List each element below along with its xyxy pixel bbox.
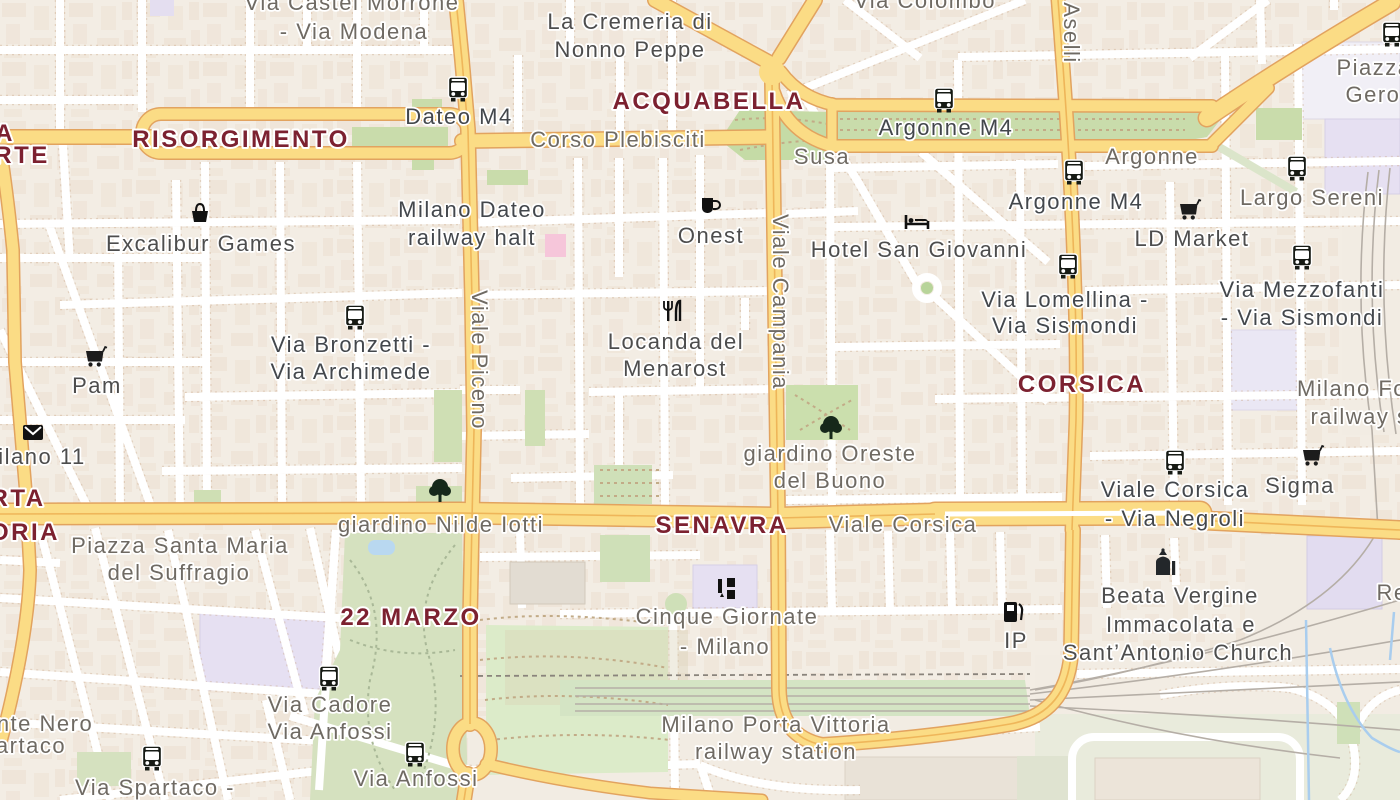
svg-text:Via Archimede: Via Archimede [271,359,432,384]
svg-text:Nonno Peppe: Nonno Peppe [554,37,705,62]
svg-text:Hotel San Giovanni: Hotel San Giovanni [811,237,1028,262]
svg-text:Via Bronzetti -: Via Bronzetti - [271,332,431,357]
svg-text:Via Spartaco -: Via Spartaco - [75,775,235,800]
svg-text:RISORGIMENTO: RISORGIMENTO [132,126,350,153]
svg-text:Argonne: Argonne [1105,144,1199,169]
svg-text:railway station: railway station [695,739,857,764]
svg-text:Re: Re [1376,580,1400,605]
svg-text:del Buono: del Buono [774,468,887,493]
svg-text:Viale Corsica: Viale Corsica [1101,477,1250,502]
svg-text:Argonne M4: Argonne M4 [879,115,1014,140]
svg-text:Corso Plebisciti: Corso Plebisciti [530,127,706,152]
svg-text:- Via Sismondi: - Via Sismondi [1221,305,1383,330]
svg-text:Via Mezzofanti: Via Mezzofanti [1220,277,1385,302]
svg-text:Via Sismondi: Via Sismondi [992,313,1138,338]
svg-text:CORSICA: CORSICA [1018,371,1146,398]
svg-text:Milano Dateo: Milano Dateo [398,197,546,222]
svg-text:- Via Negroli: - Via Negroli [1105,506,1245,531]
svg-text:ilano 11: ilano 11 [0,444,86,469]
svg-text:Sant’Antonio Church: Sant’Antonio Church [1063,640,1293,665]
svg-text:Cinque Giornate: Cinque Giornate [636,604,819,629]
svg-text:LD Market: LD Market [1135,226,1250,251]
svg-text:Milano Fo: Milano Fo [1297,376,1400,401]
svg-text:Menarost: Menarost [623,356,727,381]
svg-text:Largo Sereni: Largo Sereni [1240,185,1384,210]
svg-text:- Milano: - Milano [680,634,770,659]
svg-text:Onest: Onest [678,223,744,248]
svg-text:railway s: railway s [1310,404,1400,429]
svg-text:Via Castel Morrone: Via Castel Morrone [245,0,460,15]
svg-text:RTA: RTA [0,485,46,512]
svg-text:railway halt: railway halt [408,225,536,250]
svg-text:Susa: Susa [794,144,850,169]
svg-text:artaco: artaco [0,733,66,758]
svg-text:RTE: RTE [0,142,50,169]
svg-text:Viale Corsica: Viale Corsica [829,512,978,537]
svg-text:ORIA: ORIA [0,519,60,546]
svg-text:Viale Piceno: Viale Piceno [467,290,492,430]
svg-text:Piazza Santa Maria: Piazza Santa Maria [71,533,289,558]
svg-text:Aselli: Aselli [1059,2,1084,64]
svg-text:del Suffragio: del Suffragio [108,560,251,585]
svg-text:giardino Nilde Iotti: giardino Nilde Iotti [338,512,544,537]
svg-text:Via Cadore: Via Cadore [268,692,393,717]
svg-text:Via Anfossi: Via Anfossi [354,766,479,791]
svg-text:Argonne M4: Argonne M4 [1009,189,1144,214]
svg-text:- Via Modena: - Via Modena [280,19,428,44]
svg-text:La Cremeria di: La Cremeria di [547,9,712,34]
svg-text:Viale Campania: Viale Campania [768,214,793,390]
svg-text:Milano Porta Vittoria: Milano Porta Vittoria [661,712,890,737]
svg-text:Via Anfossi: Via Anfossi [268,719,393,744]
svg-text:Excalibur Games: Excalibur Games [106,231,296,256]
svg-text:ACQUABELLA: ACQUABELLA [613,88,806,115]
svg-text:Via Colombo: Via Colombo [854,0,996,13]
svg-text:Pam: Pam [72,373,122,398]
svg-text:IP: IP [1004,628,1028,653]
svg-text:Dateo M4: Dateo M4 [405,104,512,129]
svg-text:Immacolata e: Immacolata e [1106,612,1256,637]
svg-text:22 MARZO: 22 MARZO [340,604,481,631]
svg-text:SENAVRA: SENAVRA [655,512,788,539]
svg-text:giardino Oreste: giardino Oreste [744,441,917,466]
svg-text:Gerola: Gerola [1345,82,1400,107]
svg-text:Via Lomellina -: Via Lomellina - [981,287,1149,312]
svg-text:Beata Vergine: Beata Vergine [1101,583,1259,608]
svg-text:Locanda del: Locanda del [608,329,744,354]
svg-text:Sigma: Sigma [1265,473,1335,498]
svg-text:Piazza: Piazza [1336,55,1400,80]
